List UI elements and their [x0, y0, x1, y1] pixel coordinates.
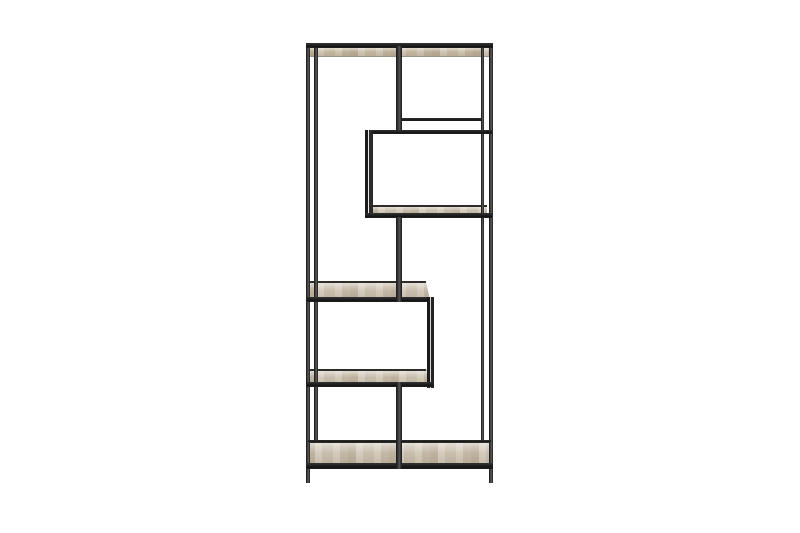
middle-left-shelf-front-rail [307, 297, 433, 302]
front-left-leg [306, 43, 310, 483]
lower-left-shelf-front-rail [307, 382, 433, 387]
back-right-leg [481, 44, 485, 440]
back-left-leg [314, 44, 318, 440]
center-post-lower-segment [396, 382, 402, 469]
front-right-leg [489, 43, 493, 483]
product-photo-scene [0, 0, 800, 533]
upper-right-box-left-post [365, 130, 373, 218]
upper-right-back-rail [398, 118, 482, 121]
upper-right-box-top-rail [365, 130, 492, 134]
center-post-middle-segment [396, 217, 402, 302]
center-post-upper-segment [396, 46, 402, 130]
lower-left-box-right-post [427, 297, 434, 388]
bookcase [306, 43, 493, 483]
upper-right-box-bottom-rail [365, 213, 492, 218]
